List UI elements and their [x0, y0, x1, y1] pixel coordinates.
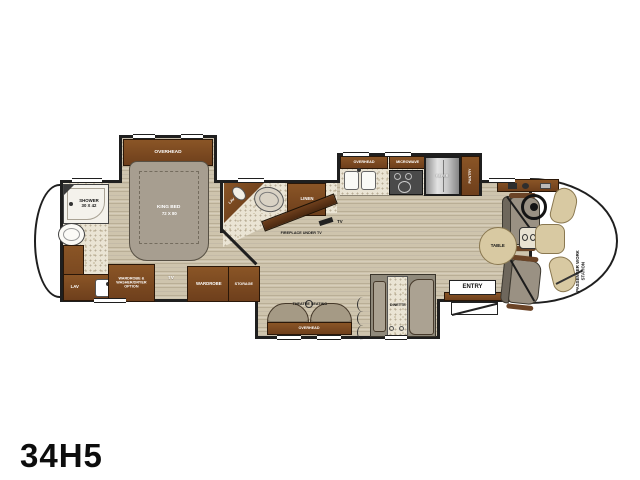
rear-lav-label: LAV: [62, 280, 88, 294]
storage-label: STORAGE: [235, 282, 253, 286]
king-bed-size-label: 72 X 80: [162, 212, 177, 217]
wardrobe-washer-label: WARDROBE & WASHER/DRYER OPTION: [116, 277, 146, 289]
pantry-cabinet: PANTRY: [461, 156, 480, 196]
kitchen-wall-stub: [479, 183, 482, 196]
laptop-circle-left: [522, 234, 528, 241]
dinette-cupholder-2: [399, 326, 404, 331]
shower-label: SHOWER 30 X 42: [70, 190, 108, 218]
window-marker-11: [385, 335, 407, 340]
window-marker-9: [277, 335, 301, 340]
bedroom-overhead-label: OVERHEAD: [154, 150, 181, 156]
kitchen-sink-right-icon: [361, 171, 376, 190]
window-marker-1: [72, 178, 102, 183]
cab-overhead-item-1: [508, 183, 517, 189]
steering-wheel-icon: [521, 194, 547, 220]
dinette-label: DINETTE: [381, 300, 415, 310]
cooktop-knob-left: [394, 173, 401, 180]
refrigerator: REFER: [424, 156, 461, 196]
refrigerator-label: REFER: [436, 174, 449, 178]
accordion-door-arc-1: [357, 297, 369, 312]
living-tv-label: TV: [332, 217, 348, 227]
window-marker-4: [238, 178, 264, 183]
cab-overhead-item-3: [540, 183, 551, 189]
window-marker-3: [181, 134, 203, 139]
toilet-bowl: [63, 228, 80, 241]
entry-label-box: ENTRY: [449, 280, 496, 295]
cooktop-icon: [389, 170, 423, 195]
wardrobe-washer-cabinet: WARDROBE & WASHER/DRYER OPTION: [108, 264, 155, 302]
window-marker-6: [385, 152, 411, 157]
toilet-icon: [58, 223, 85, 246]
mid-bath-toilet-ring: [257, 190, 280, 209]
cab-table: TABLE: [479, 227, 517, 265]
wardrobe-cabinet: WARDROBE: [187, 266, 230, 302]
window-marker-2: [133, 134, 155, 139]
theatre-overhead-label: OVERHEAD: [299, 326, 320, 330]
window-marker-5: [343, 152, 369, 157]
work-desk: [535, 224, 565, 254]
cab-overhead-item-2: [522, 183, 529, 189]
microwave-cabinet: MICROWAVE: [389, 156, 426, 169]
shower: SHOWER 30 X 42: [63, 184, 109, 224]
kitchen-faucet-icon: [357, 168, 361, 172]
theatre-seating-label: THEATRE SEATING: [270, 299, 350, 309]
theatre-overhead-cabinet: OVERHEAD: [267, 322, 352, 335]
model-label: 34H5: [20, 437, 103, 475]
kitchen-overhead-cabinet: OVERHEAD: [340, 156, 388, 169]
cab-table-label: TABLE: [491, 244, 505, 249]
cooktop-knob-right: [405, 173, 412, 180]
fireplace-label: FIREPLACE UNDER TV: [258, 228, 344, 238]
entry-label: ENTRY: [462, 284, 482, 291]
cooktop-burner: [398, 181, 411, 193]
steering-wheel-hub: [530, 203, 538, 211]
kitchen-sink-left-icon: [344, 171, 359, 190]
king-bed: KING BED 72 X 80: [129, 161, 209, 261]
wardrobe-label: WARDROBE: [196, 282, 222, 287]
floorplan-canvas: SHOWER 30 X 42 LAV OVERHEAD KING BED 72 …: [0, 0, 640, 480]
window-marker-7: [489, 178, 515, 183]
microwave-label: MICROWAVE: [396, 160, 419, 164]
pantry-label: PANTRY: [468, 169, 472, 184]
work-station-label: PASSENGER WORK STATION: [575, 244, 588, 297]
storage-cabinet: STORAGE: [228, 266, 260, 302]
bedroom-tv-label: TV: [158, 272, 184, 284]
window-marker-10: [317, 335, 341, 340]
kitchen-overhead-label: OVERHEAD: [353, 160, 374, 164]
accordion-door-arc-2: [357, 311, 369, 326]
accordion-door-arc-3: [357, 325, 369, 340]
rv-rear-cap: [34, 184, 62, 298]
window-marker-8: [94, 298, 126, 303]
king-bed-label: KING BED: [157, 205, 180, 211]
dinette-cupholder-1: [389, 326, 394, 331]
